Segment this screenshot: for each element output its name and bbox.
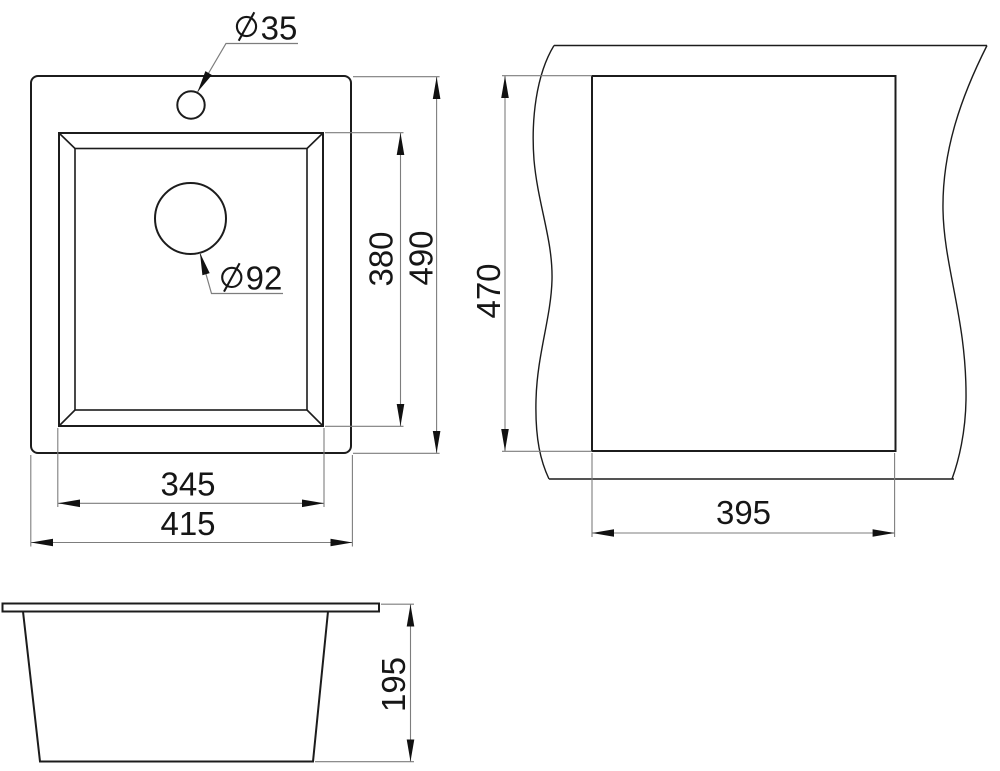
svg-text:395: 395 (716, 494, 771, 531)
svg-text:195: 195 (375, 657, 412, 712)
svg-text:380: 380 (363, 231, 400, 286)
svg-text:92: 92 (246, 260, 283, 297)
svg-text:35: 35 (261, 10, 298, 47)
svg-text:470: 470 (470, 263, 507, 318)
svg-text:490: 490 (403, 230, 440, 285)
svg-text:345: 345 (160, 466, 215, 503)
svg-text:415: 415 (160, 505, 215, 542)
